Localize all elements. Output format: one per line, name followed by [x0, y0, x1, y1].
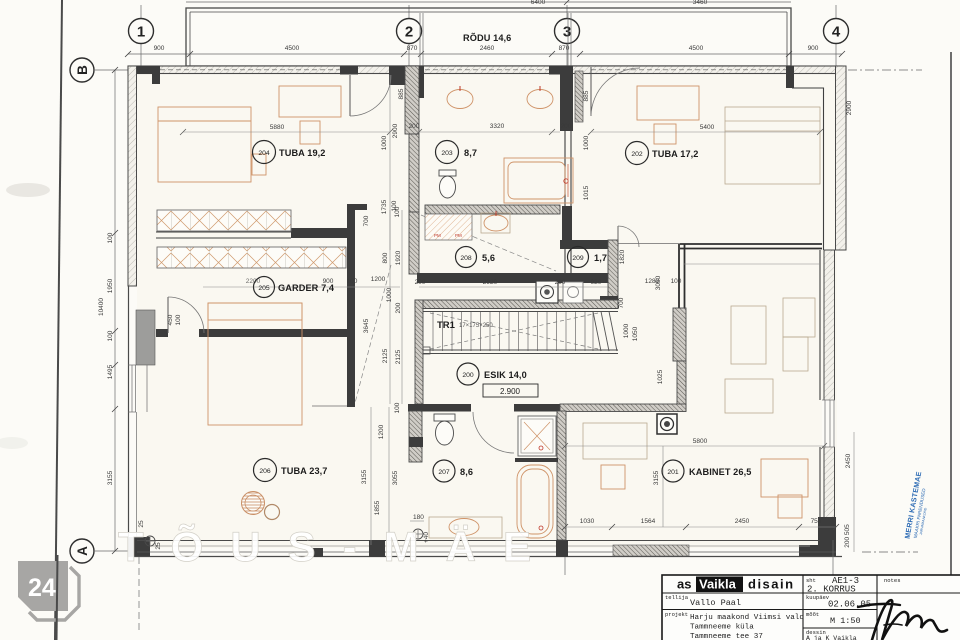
svg-text:1000: 1000	[583, 135, 590, 150]
svg-text:1735: 1735	[381, 199, 388, 214]
svg-text:1920: 1920	[395, 250, 402, 265]
svg-text:projekt: projekt	[665, 611, 688, 618]
svg-text:1030: 1030	[580, 518, 595, 525]
svg-text:209: 209	[572, 255, 584, 262]
svg-text:4500: 4500	[285, 45, 300, 52]
svg-text:202: 202	[631, 151, 643, 158]
svg-text:2450: 2450	[845, 453, 852, 468]
svg-text:920: 920	[591, 279, 602, 286]
svg-text:4500: 4500	[689, 45, 704, 52]
svg-text:200: 200	[561, 123, 572, 130]
svg-text:PM: PM	[455, 233, 462, 238]
svg-text:1050: 1050	[632, 326, 639, 341]
svg-text:1,7: 1,7	[594, 253, 607, 263]
svg-text:TUBA 17,2: TUBA 17,2	[652, 149, 699, 159]
svg-text:2200: 2200	[246, 278, 261, 285]
svg-text:notes: notes	[884, 577, 901, 584]
svg-text:KABINET 26,5: KABINET 26,5	[689, 467, 751, 477]
svg-text:B: B	[75, 65, 90, 75]
svg-text:204: 204	[258, 150, 270, 157]
svg-text:TÕUS-MÄE: TÕUS-MÄE	[118, 522, 558, 570]
svg-text:1200: 1200	[371, 276, 386, 283]
svg-text:885: 885	[398, 88, 405, 99]
svg-text:M 1:50: M 1:50	[830, 616, 861, 626]
svg-text:100: 100	[394, 402, 401, 413]
svg-text:100: 100	[107, 330, 114, 341]
svg-text:4: 4	[832, 24, 841, 41]
svg-text:1495: 1495	[107, 364, 114, 379]
svg-text:100: 100	[671, 278, 682, 285]
svg-text:5400: 5400	[700, 124, 715, 131]
svg-text:700: 700	[363, 215, 370, 226]
svg-text:2450: 2450	[735, 518, 750, 525]
svg-text:800: 800	[382, 252, 389, 263]
svg-text:200: 200	[415, 279, 426, 286]
svg-text:100: 100	[347, 278, 358, 285]
svg-text:1000: 1000	[381, 135, 388, 150]
svg-text:8,7: 8,7	[464, 148, 477, 158]
svg-text:1025: 1025	[657, 369, 664, 384]
svg-text:TUBA 23,7: TUBA 23,7	[281, 466, 328, 476]
svg-text:203: 203	[441, 150, 453, 157]
svg-text:Vallo Paal: Vallo Paal	[690, 598, 741, 608]
svg-text:1855: 1855	[374, 500, 381, 515]
svg-text:10400: 10400	[98, 298, 105, 316]
svg-text:3155: 3155	[107, 470, 114, 485]
svg-text:Vaikla: Vaikla	[699, 577, 737, 592]
svg-text:as: as	[677, 577, 691, 592]
svg-text:1950: 1950	[107, 278, 114, 293]
svg-text:TUBA 19,2: TUBA 19,2	[279, 148, 326, 158]
svg-text:1000: 1000	[623, 323, 630, 338]
svg-text:756: 756	[811, 518, 822, 525]
svg-text:900: 900	[808, 45, 819, 52]
svg-text:RÕDU 14,6: RÕDU 14,6	[463, 33, 511, 43]
svg-text:206: 206	[259, 468, 271, 475]
svg-text:700: 700	[618, 297, 625, 308]
svg-text:100: 100	[107, 232, 114, 243]
svg-text:1015: 1015	[583, 185, 590, 200]
svg-text:180: 180	[413, 514, 424, 521]
svg-text:450: 450	[167, 314, 174, 325]
svg-text:5880: 5880	[270, 124, 285, 131]
svg-text:TR1: TR1	[437, 320, 456, 331]
svg-text:17×175×250: 17×175×250	[459, 323, 493, 329]
svg-text:3155: 3155	[653, 470, 660, 485]
svg-text:3155: 3155	[361, 469, 368, 484]
svg-text:100: 100	[394, 206, 401, 217]
svg-text:5800: 5800	[693, 438, 708, 445]
svg-text:2: 2	[405, 24, 413, 41]
svg-text:kuupäev: kuupäev	[806, 594, 830, 601]
svg-text:8,6: 8,6	[460, 467, 473, 477]
svg-text:3460: 3460	[693, 0, 708, 6]
svg-text:mõõt: mõõt	[806, 611, 819, 618]
svg-text:208: 208	[460, 255, 472, 262]
svg-text:2900: 2900	[846, 100, 853, 115]
svg-text:1000: 1000	[386, 287, 393, 302]
svg-text:tellija: tellija	[665, 594, 689, 601]
svg-text:2920: 2920	[483, 279, 498, 286]
svg-text:Tammneeme küla: Tammneeme küla	[690, 624, 754, 632]
svg-text:5,6: 5,6	[482, 253, 495, 263]
svg-text:Tammneeme tee 37: Tammneeme tee 37	[690, 633, 763, 640]
svg-text:1820: 1820	[619, 249, 626, 264]
svg-text:885: 885	[583, 90, 590, 101]
svg-text:3: 3	[563, 24, 571, 41]
svg-text:200: 200	[462, 372, 474, 379]
svg-text:2. KORRUS: 2. KORRUS	[807, 585, 856, 595]
svg-text:disain: disain	[748, 577, 795, 592]
svg-text:GARDER 7,4: GARDER 7,4	[278, 283, 335, 293]
svg-text:200 505: 200 505	[844, 524, 851, 548]
svg-text:2900: 2900	[392, 123, 399, 138]
svg-text:3645: 3645	[363, 318, 370, 333]
svg-text:2.900: 2.900	[500, 387, 521, 396]
svg-text:205: 205	[258, 285, 270, 292]
svg-text:A: A	[75, 546, 90, 556]
svg-text:1564: 1564	[641, 518, 656, 525]
svg-text:200: 200	[395, 302, 402, 313]
svg-text:870: 870	[407, 45, 418, 52]
svg-text:207: 207	[438, 469, 450, 476]
svg-text:Harju maakond Viimsi vald: Harju maakond Viimsi vald	[690, 614, 804, 622]
svg-text:2125: 2125	[382, 348, 389, 363]
svg-text:1: 1	[137, 24, 145, 41]
svg-text:sht: sht	[806, 577, 816, 584]
svg-text:ESIK 14,0: ESIK 14,0	[484, 370, 527, 380]
svg-text:201: 201	[667, 469, 679, 476]
svg-text:3055: 3055	[392, 470, 399, 485]
svg-text:A ja K Vaikla: A ja K Vaikla	[806, 635, 857, 640]
svg-text:2460: 2460	[480, 45, 495, 52]
svg-text:900: 900	[154, 45, 165, 52]
svg-text:6400: 6400	[531, 0, 546, 6]
svg-text:100: 100	[175, 314, 182, 325]
svg-text:200: 200	[409, 123, 420, 130]
svg-text:24: 24	[28, 574, 56, 602]
svg-text:200: 200	[555, 279, 566, 286]
svg-text:PM: PM	[434, 233, 441, 238]
svg-text:3320: 3320	[490, 123, 505, 130]
svg-text:3050: 3050	[655, 275, 662, 290]
svg-text:1200: 1200	[378, 424, 385, 439]
svg-text:2125: 2125	[395, 349, 402, 364]
